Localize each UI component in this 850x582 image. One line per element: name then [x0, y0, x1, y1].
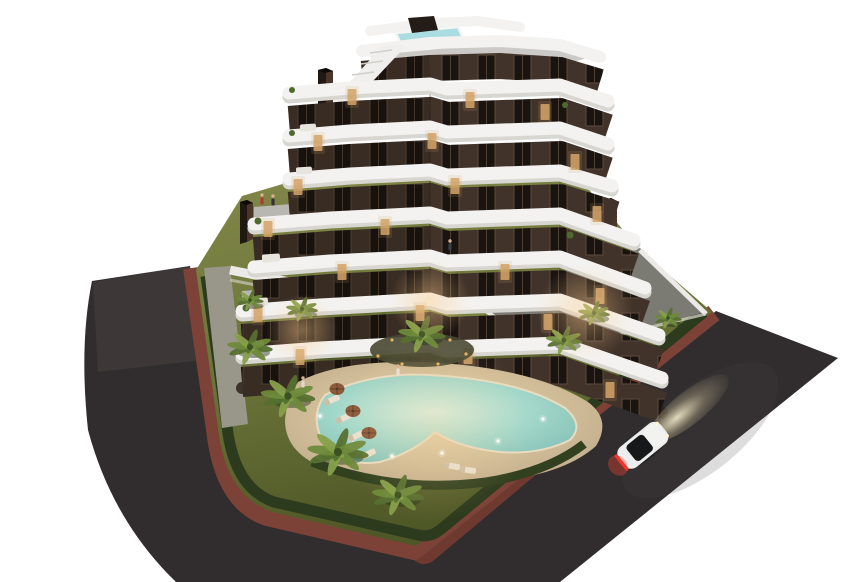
- palm-crown: [247, 344, 253, 350]
- pool-light: [541, 417, 544, 420]
- person-body: [271, 199, 274, 206]
- person: [301, 376, 304, 387]
- lit-window: [606, 382, 615, 398]
- palm-crown: [334, 448, 342, 456]
- person-body: [301, 381, 304, 388]
- lit-window: [348, 89, 357, 105]
- lit-window: [314, 135, 323, 151]
- scene-svg: [0, 0, 850, 582]
- lit-window: [571, 154, 580, 170]
- parasol: [330, 383, 345, 395]
- palm-crown: [284, 392, 291, 399]
- person-head: [301, 376, 304, 379]
- palm-crown: [248, 298, 252, 302]
- lit-window: [451, 178, 460, 194]
- person-head: [271, 194, 274, 197]
- lit-window: [466, 92, 475, 108]
- lit-window: [501, 264, 510, 280]
- lit-window: [338, 264, 347, 280]
- lit-window: [593, 206, 602, 222]
- person-body: [260, 198, 263, 205]
- person-head: [260, 193, 263, 196]
- lit-window: [541, 104, 550, 120]
- render-canvas: [0, 0, 850, 582]
- lit-window: [264, 221, 273, 237]
- palm-crown: [666, 316, 670, 320]
- roof-glass-box: [408, 16, 438, 33]
- person-head: [448, 239, 451, 242]
- lit-window: [428, 133, 437, 149]
- parasol-pole: [336, 388, 338, 390]
- person: [260, 193, 263, 204]
- person-body: [448, 244, 451, 251]
- lit-window: [381, 219, 390, 235]
- person: [448, 239, 451, 250]
- pool-light: [318, 414, 321, 417]
- lit-window: [294, 179, 303, 195]
- person: [271, 194, 274, 205]
